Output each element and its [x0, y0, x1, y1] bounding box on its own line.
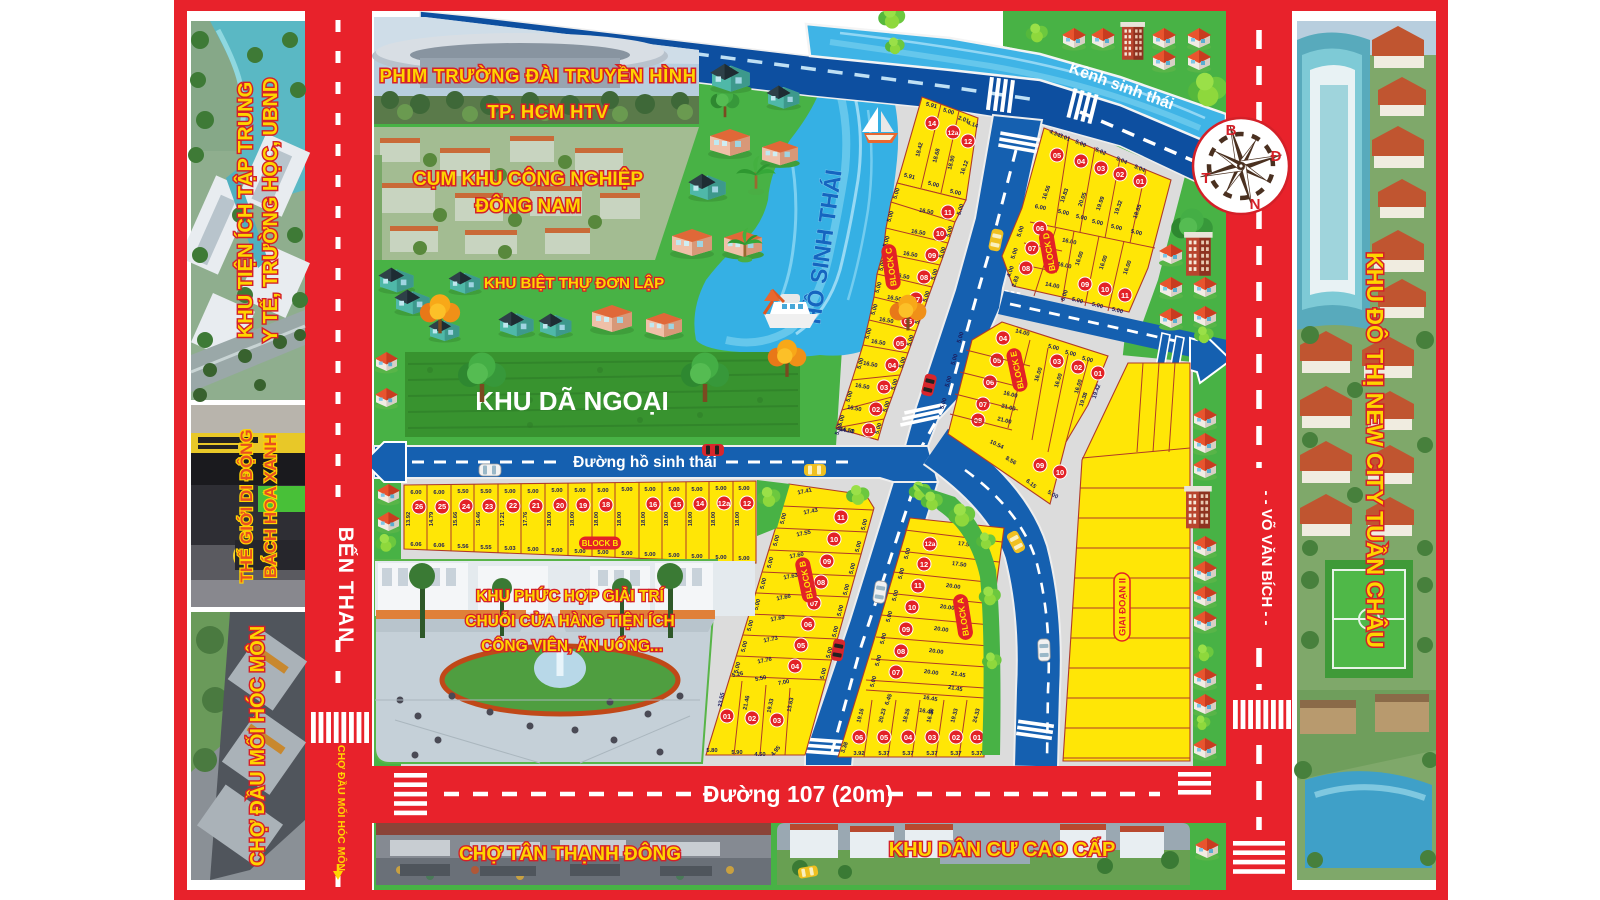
svg-text:CHUỖI CỬA HÀNG TIỆN ÍCH: CHUỖI CỬA HÀNG TIỆN ÍCH	[465, 612, 674, 630]
svg-text:THẾ GIỚI DI ĐỘNG: THẾ GIỚI DI ĐỘNG	[237, 429, 256, 582]
svg-text:08: 08	[920, 273, 928, 282]
svg-text:01: 01	[865, 426, 873, 435]
svg-text:5.00: 5.00	[551, 488, 562, 494]
svg-text:12a: 12a	[718, 499, 731, 508]
svg-text:25: 25	[438, 502, 446, 511]
svg-text:5.37: 5.37	[950, 751, 961, 757]
svg-text:16: 16	[649, 500, 657, 509]
svg-text:5.00: 5.00	[644, 552, 655, 558]
svg-text:03: 03	[1053, 357, 1061, 366]
svg-text:KHU PHỨC HỢP GIẢI TRÍ: KHU PHỨC HỢP GIẢI TRÍ	[476, 587, 664, 605]
svg-text:18.00: 18.00	[688, 512, 694, 527]
svg-text:09: 09	[902, 625, 910, 634]
svg-text:5.90: 5.90	[731, 750, 742, 756]
svg-text:5.03: 5.03	[504, 546, 516, 552]
svg-text:01: 01	[973, 733, 981, 742]
svg-text:5.00: 5.00	[691, 487, 702, 493]
svg-text:14.79: 14.79	[429, 511, 435, 526]
svg-text:02: 02	[1074, 363, 1082, 372]
svg-text:KHU DÃ NGOẠI: KHU DÃ NGOẠI	[475, 386, 669, 416]
svg-text:PHIM TRƯỜNG ĐÀI TRUYỀN HÌNH: PHIM TRƯỜNG ĐÀI TRUYỀN HÌNH	[380, 65, 697, 86]
svg-text:5.00: 5.00	[527, 489, 538, 495]
svg-text:08: 08	[817, 578, 825, 587]
svg-text:03: 03	[880, 383, 888, 392]
svg-text:Y TẾ, TRƯỜNG HỌC, UBND: Y TẾ, TRƯỜNG HỌC, UBND	[258, 78, 282, 342]
svg-text:17.21: 17.21	[500, 511, 506, 526]
svg-text:10: 10	[936, 229, 944, 238]
svg-text:04: 04	[999, 334, 1008, 343]
svg-text:18.00: 18.00	[641, 512, 647, 527]
svg-text:TP. HCM HTV: TP. HCM HTV	[487, 101, 608, 122]
svg-text:04: 04	[904, 733, 913, 742]
svg-text:5.00: 5.00	[621, 551, 632, 557]
svg-text:5.37: 5.37	[926, 751, 937, 757]
svg-text:18.00: 18.00	[547, 512, 553, 527]
svg-text:05: 05	[1053, 151, 1061, 160]
svg-text:5.00: 5.00	[668, 553, 679, 559]
svg-text:18.00: 18.00	[570, 512, 576, 527]
svg-text:CHỢ ĐẦU MỐI HÓC MÔN: CHỢ ĐẦU MỐI HÓC MÔN	[245, 626, 269, 866]
svg-text:BẾN THAN: BẾN THAN	[334, 527, 357, 644]
svg-text:5.37: 5.37	[971, 751, 982, 757]
svg-text:CỤM KHU CÔNG NGHIỆP: CỤM KHU CÔNG NGHIỆP	[413, 168, 643, 190]
svg-text:18.00: 18.00	[735, 512, 741, 527]
svg-text:5.55: 5.55	[480, 545, 492, 551]
svg-text:05: 05	[797, 641, 805, 650]
svg-text:10: 10	[908, 603, 916, 612]
svg-text:17.76: 17.76	[523, 511, 529, 526]
svg-text:KHU DÂN CƯ CAO CẤP: KHU DÂN CƯ CAO CẤP	[889, 837, 1116, 861]
svg-text:24: 24	[462, 502, 471, 511]
svg-text:5.00: 5.00	[668, 487, 679, 493]
svg-text:18.00: 18.00	[711, 512, 717, 527]
svg-text:5.56: 5.56	[457, 544, 469, 550]
svg-text:5.00: 5.00	[504, 489, 515, 495]
svg-text:18.00: 18.00	[594, 512, 600, 527]
svg-text:6.06: 6.06	[433, 543, 445, 549]
svg-text:26: 26	[415, 502, 423, 511]
svg-text:02: 02	[872, 405, 880, 414]
svg-text:12a: 12a	[948, 130, 959, 137]
svg-text:6.06: 6.06	[410, 542, 422, 548]
svg-text:10: 10	[830, 535, 838, 544]
svg-text:01: 01	[1094, 369, 1102, 378]
svg-text:3.92: 3.92	[853, 751, 864, 757]
svg-text:01: 01	[723, 712, 731, 721]
svg-text:5.00: 5.00	[574, 488, 585, 494]
svg-text:18.00: 18.00	[617, 512, 623, 527]
svg-text:- - VÕ VĂN BÍCH - -: - - VÕ VĂN BÍCH - -	[1258, 491, 1276, 626]
svg-text:09: 09	[928, 251, 936, 260]
svg-text:06: 06	[855, 733, 863, 742]
svg-text:04: 04	[1077, 157, 1086, 166]
svg-text:ĐÔNG NAM: ĐÔNG NAM	[475, 195, 581, 217]
svg-text:11: 11	[944, 208, 952, 217]
svg-text:11: 11	[837, 513, 845, 522]
svg-text:Đường 107 (20m): Đường 107 (20m)	[703, 781, 893, 807]
svg-text:01: 01	[1136, 177, 1144, 186]
svg-text:04: 04	[791, 662, 800, 671]
svg-text:15: 15	[673, 500, 681, 509]
svg-text:KHU TIỆN ÍCH TẬP TRUNG: KHU TIỆN ÍCH TẬP TRUNG	[233, 82, 257, 338]
svg-text:03: 03	[773, 716, 781, 725]
svg-text:GIAI ĐOẠN II: GIAI ĐOẠN II	[1118, 578, 1129, 636]
svg-text:5.50: 5.50	[457, 489, 468, 495]
svg-text:07: 07	[892, 668, 900, 677]
svg-text:6.00: 6.00	[410, 490, 421, 496]
svg-text:Đường hồ sinh thái: Đường hồ sinh thái	[573, 454, 717, 471]
svg-text:11: 11	[1121, 291, 1129, 300]
svg-text:5.00: 5.00	[597, 488, 608, 494]
svg-text:12a: 12a	[925, 541, 936, 548]
svg-text:05: 05	[896, 339, 904, 348]
svg-text:03: 03	[928, 733, 936, 742]
svg-text:5.00: 5.00	[644, 487, 655, 493]
svg-text:5.80: 5.80	[706, 748, 717, 754]
svg-text:08: 08	[897, 647, 905, 656]
svg-text:5.37: 5.37	[902, 751, 913, 757]
svg-text:N: N	[1250, 196, 1261, 213]
svg-text:5.00: 5.00	[574, 549, 585, 555]
svg-text:02: 02	[1116, 170, 1124, 179]
svg-text:5.50: 5.50	[480, 489, 491, 495]
svg-text:08: 08	[1022, 264, 1030, 273]
svg-text:KHU ĐÔ THỊ NEW CITY TUẦN CHÂU: KHU ĐÔ THỊ NEW CITY TUẦN CHÂU	[1362, 252, 1389, 648]
svg-text:12: 12	[920, 560, 928, 569]
svg-text:14: 14	[928, 119, 937, 128]
svg-text:21: 21	[532, 501, 540, 510]
svg-text:10: 10	[1056, 468, 1064, 477]
svg-text:Đ: Đ	[1271, 148, 1282, 165]
svg-text:16.46: 16.46	[476, 511, 482, 526]
svg-text:4.50: 4.50	[754, 752, 765, 758]
svg-text:09: 09	[1081, 280, 1089, 289]
svg-text:14: 14	[696, 499, 705, 508]
svg-text:09: 09	[823, 557, 831, 566]
svg-text:5.00: 5.00	[551, 548, 562, 554]
svg-text:BÁCH HOA XANH: BÁCH HOA XANH	[261, 434, 280, 578]
svg-text:15.66: 15.66	[453, 511, 459, 526]
svg-text:10: 10	[1101, 285, 1109, 294]
svg-text:5.00: 5.00	[738, 486, 749, 492]
svg-text:07: 07	[1028, 244, 1036, 253]
svg-text:CHỢ TÂN THẠNH ĐÔNG: CHỢ TÂN THẠNH ĐÔNG	[459, 843, 681, 865]
svg-text:5.00: 5.00	[527, 547, 538, 553]
svg-text:18.00: 18.00	[664, 512, 670, 527]
svg-text:12: 12	[964, 137, 972, 146]
svg-text:02: 02	[952, 733, 960, 742]
svg-text:11: 11	[914, 581, 922, 590]
svg-text:13.92: 13.92	[406, 512, 412, 527]
svg-text:04: 04	[888, 361, 897, 370]
svg-text:5.00: 5.00	[621, 487, 632, 493]
svg-text:5.00: 5.00	[715, 486, 726, 492]
svg-text:05: 05	[880, 733, 888, 742]
svg-text:BLOCK B: BLOCK B	[582, 539, 619, 548]
svg-text:23: 23	[485, 502, 493, 511]
svg-text:09: 09	[1036, 461, 1044, 470]
svg-text:20: 20	[556, 501, 564, 510]
svg-text:CÔNG VIÊN, ĂN UỐNG...: CÔNG VIÊN, ĂN UỐNG...	[481, 637, 663, 655]
svg-text:02: 02	[748, 714, 756, 723]
svg-text:CHỢ ĐẦU MỐI HÓC MÔN: CHỢ ĐẦU MỐI HÓC MÔN	[335, 745, 349, 871]
svg-text:T: T	[1201, 170, 1210, 187]
svg-text:06: 06	[804, 620, 812, 629]
svg-text:18: 18	[602, 500, 610, 509]
svg-text:12: 12	[743, 499, 751, 508]
svg-text:B: B	[1226, 122, 1237, 139]
svg-text:KHU BIỆT THỰ ĐƠN LẬP: KHU BIỆT THỰ ĐƠN LẬP	[484, 274, 664, 292]
svg-text:5.37: 5.37	[878, 751, 889, 757]
svg-text:6.00: 6.00	[433, 490, 444, 496]
svg-text:22: 22	[509, 501, 517, 510]
svg-text:5.00: 5.00	[597, 550, 608, 556]
svg-text:03: 03	[1097, 164, 1105, 173]
svg-text:19: 19	[579, 501, 587, 510]
